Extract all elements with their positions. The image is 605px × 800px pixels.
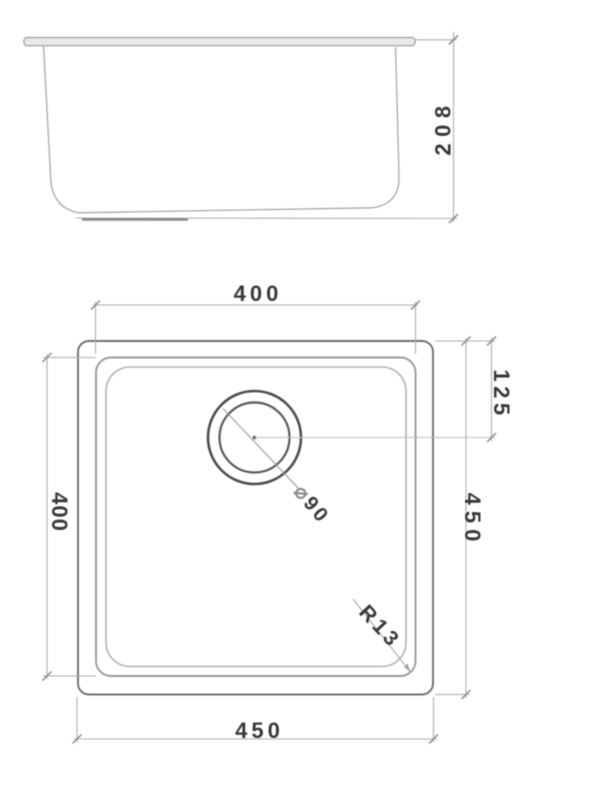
svg-text:450: 450 [235,718,284,743]
svg-text:125: 125 [489,369,514,419]
svg-text:450: 450 [460,493,485,548]
svg-text:400: 400 [47,492,72,532]
svg-text:400: 400 [234,281,283,306]
svg-text:R13: R13 [354,601,405,654]
svg-text:⌀90: ⌀90 [289,481,334,528]
svg-text:208: 208 [431,99,456,155]
